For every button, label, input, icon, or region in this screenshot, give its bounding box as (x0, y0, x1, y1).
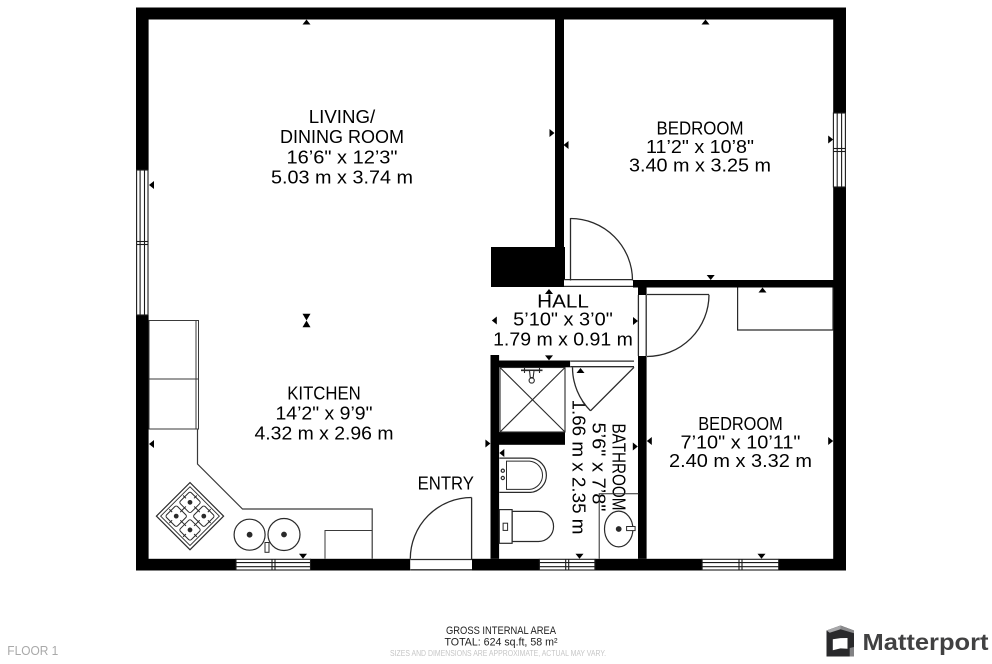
svg-text:GROSS INTERNAL AREA: GROSS INTERNAL AREA (446, 625, 557, 637)
svg-text:SIZES AND DIMENSIONS ARE APPRO: SIZES AND DIMENSIONS ARE APPROXIMATE, AC… (390, 649, 606, 658)
svg-text:ENTRY: ENTRY (418, 474, 474, 494)
svg-text:2.40 m x 3.32 m: 2.40 m x 3.32 m (669, 451, 812, 471)
svg-text:5.03 m x 3.74 m: 5.03 m x 3.74 m (271, 168, 413, 188)
svg-text:16’6" x 12’3": 16’6" x 12’3" (287, 148, 398, 168)
svg-text:BEDROOM: BEDROOM (657, 119, 744, 139)
svg-text:1.66 m x 2.35 m: 1.66 m x 2.35 m (569, 400, 589, 535)
svg-text:14’2" x 9’9": 14’2" x 9’9" (276, 404, 373, 424)
svg-text:11’2" x 10’8": 11’2" x 10’8" (646, 137, 754, 157)
svg-text:KITCHEN: KITCHEN (287, 384, 361, 404)
svg-text:BEDROOM: BEDROOM (698, 414, 783, 434)
svg-text:FLOOR 1: FLOOR 1 (7, 643, 58, 658)
svg-text:DINING ROOM: DINING ROOM (280, 127, 404, 147)
svg-text:HALL: HALL (537, 292, 589, 312)
svg-text:TOTAL: 624 sq.ft, 58 m²: TOTAL: 624 sq.ft, 58 m² (445, 636, 558, 648)
svg-text:5’10" x 3’0": 5’10" x 3’0" (513, 310, 613, 330)
svg-text:1.79 m x 0.91 m: 1.79 m x 0.91 m (493, 330, 633, 350)
svg-text:3.40 m x 3.25 m: 3.40 m x 3.25 m (629, 156, 771, 176)
svg-text:Matterport: Matterport (863, 629, 989, 655)
svg-text:4.32 m x 2.96 m: 4.32 m x 2.96 m (255, 424, 394, 444)
svg-text:BATHROOM: BATHROOM (609, 424, 629, 511)
svg-text:LIVING/: LIVING/ (309, 107, 376, 127)
svg-text:7’10" x 10’11": 7’10" x 10’11" (681, 433, 801, 453)
